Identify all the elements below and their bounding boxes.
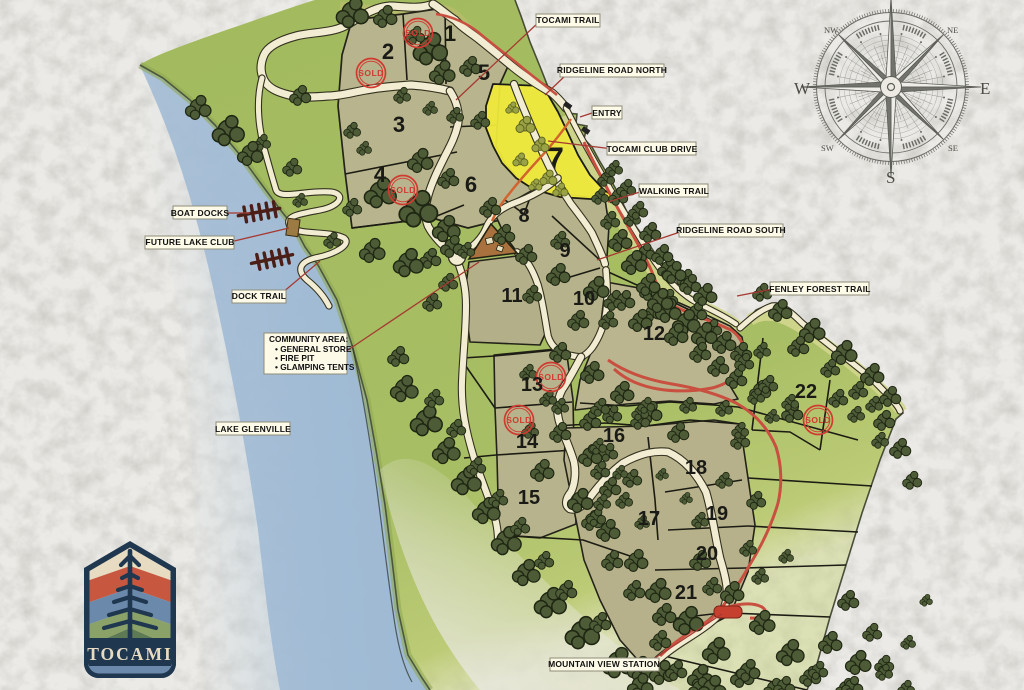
- svg-text:11: 11: [501, 285, 522, 307]
- svg-text:SOLD: SOLD: [358, 68, 384, 78]
- svg-text:BOAT DOCKS: BOAT DOCKS: [171, 208, 230, 218]
- svg-text:SOLD: SOLD: [805, 415, 831, 425]
- svg-text:14: 14: [516, 431, 539, 453]
- svg-text:9: 9: [559, 240, 570, 262]
- svg-text:NW: NW: [824, 25, 838, 35]
- svg-text:S: S: [886, 168, 895, 187]
- svg-text:• GLAMPING TENTS: • GLAMPING TENTS: [275, 362, 355, 372]
- svg-text:DOCK TRAIL: DOCK TRAIL: [232, 291, 286, 301]
- svg-text:E: E: [980, 79, 990, 98]
- svg-text:TOCAMI: TOCAMI: [87, 644, 173, 664]
- svg-text:20: 20: [696, 543, 718, 565]
- svg-text:SOLD: SOLD: [506, 415, 532, 425]
- svg-text:RIDGELINE ROAD SOUTH: RIDGELINE ROAD SOUTH: [676, 225, 786, 235]
- svg-text:WALKING TRAIL: WALKING TRAIL: [639, 186, 709, 196]
- svg-text:FENLEY FOREST TRAIL: FENLEY FOREST TRAIL: [769, 284, 870, 294]
- svg-text:22: 22: [795, 381, 817, 403]
- svg-text:10: 10: [573, 288, 595, 310]
- svg-text:19: 19: [706, 503, 728, 525]
- svg-text:NE: NE: [947, 25, 958, 35]
- svg-text:TOCAMI TRAIL: TOCAMI TRAIL: [536, 15, 599, 25]
- svg-text:4: 4: [374, 162, 387, 187]
- svg-text:16: 16: [603, 425, 625, 447]
- svg-text:SE: SE: [948, 143, 958, 153]
- svg-text:LAKE GLENVILLE: LAKE GLENVILLE: [215, 424, 291, 434]
- svg-text:ENTRY: ENTRY: [592, 108, 622, 118]
- svg-text:SOLD: SOLD: [405, 28, 431, 38]
- svg-text:8: 8: [518, 205, 529, 227]
- svg-text:1: 1: [444, 21, 456, 46]
- svg-text:5: 5: [478, 60, 490, 85]
- svg-text:12: 12: [643, 323, 665, 345]
- svg-text:21: 21: [675, 582, 697, 604]
- svg-text:MOUNTAIN VIEW STATION: MOUNTAIN VIEW STATION: [548, 659, 660, 669]
- svg-text:2: 2: [382, 39, 394, 64]
- svg-text:RIDGELINE ROAD NORTH: RIDGELINE ROAD NORTH: [557, 65, 667, 75]
- svg-text:TOCAMI CLUB DRIVE: TOCAMI CLUB DRIVE: [606, 144, 697, 154]
- svg-text:W: W: [794, 79, 811, 98]
- svg-text:3: 3: [393, 112, 405, 137]
- svg-text:SW: SW: [821, 143, 834, 153]
- svg-text:FUTURE LAKE CLUB: FUTURE LAKE CLUB: [145, 237, 234, 247]
- svg-text:17: 17: [638, 508, 660, 530]
- svg-text:6: 6: [465, 172, 477, 197]
- svg-text:15: 15: [518, 487, 540, 509]
- svg-text:13: 13: [521, 374, 543, 396]
- svg-text:SOLD: SOLD: [390, 185, 416, 195]
- svg-text:18: 18: [685, 457, 707, 479]
- svg-text:COMMUNITY AREA:: COMMUNITY AREA:: [269, 334, 348, 344]
